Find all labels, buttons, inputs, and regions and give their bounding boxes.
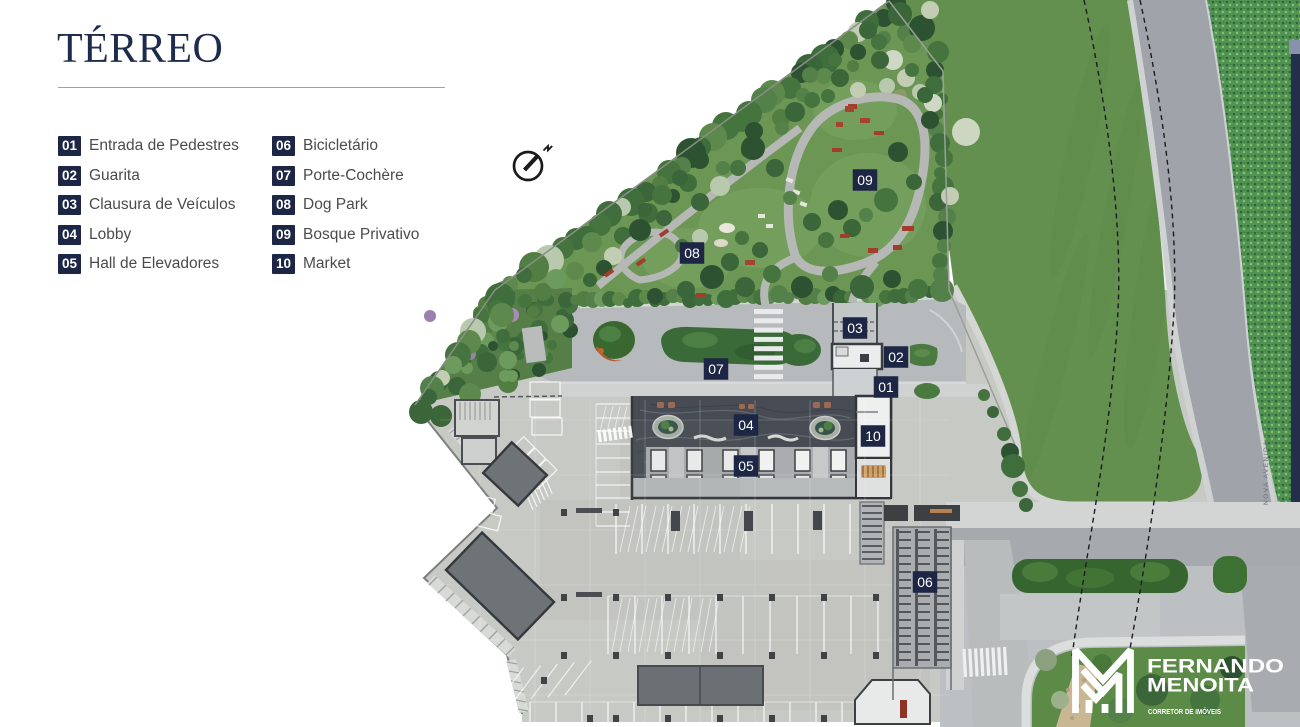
svg-text:07: 07 [708,361,724,377]
svg-text:05: 05 [738,458,754,474]
svg-text:MENOITA: MENOITA [1147,676,1254,697]
svg-text:03: 03 [847,320,863,336]
svg-text:NOVA AVENIDA: NOVA AVENIDA [1263,440,1270,505]
svg-text:04: 04 [738,417,754,433]
svg-text:08: 08 [684,245,700,261]
svg-text:06: 06 [917,574,933,590]
svg-text:09: 09 [857,172,873,188]
svg-text:FERNANDO: FERNANDO [1147,657,1284,678]
svg-text:10: 10 [865,428,881,444]
svg-text:CORRETOR DE IMÓVEIS: CORRETOR DE IMÓVEIS [1148,707,1221,716]
svg-text:02: 02 [888,349,904,365]
svg-text:01: 01 [878,379,894,395]
